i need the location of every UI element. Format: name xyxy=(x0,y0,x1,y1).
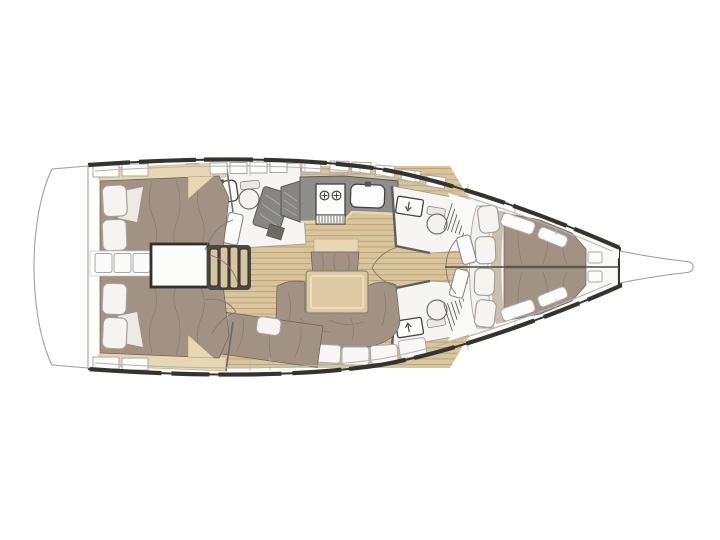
access-hatch xyxy=(133,254,150,273)
vanity-basin-icon xyxy=(395,196,423,217)
swim-platform xyxy=(34,166,88,368)
toilet-icon xyxy=(427,206,447,234)
night-shelf xyxy=(588,252,602,263)
access-hatch xyxy=(114,254,131,273)
pillow xyxy=(256,316,282,336)
engine-compartment xyxy=(151,244,208,287)
aft-cabin-starboard xyxy=(100,276,233,371)
yacht-floor-plan-drawing xyxy=(0,0,720,540)
night-shelf xyxy=(588,271,602,282)
yacht-floor-plan-page xyxy=(0,0,720,540)
toilet-icon xyxy=(239,180,260,209)
access-hatch xyxy=(95,254,112,273)
galley-sink-icon xyxy=(350,181,385,208)
galley-hatched-locker xyxy=(281,181,300,222)
stove-icon xyxy=(316,184,345,224)
anchor-sprit xyxy=(620,251,693,283)
salon-table xyxy=(306,271,368,313)
bench-wood-top xyxy=(314,239,358,252)
